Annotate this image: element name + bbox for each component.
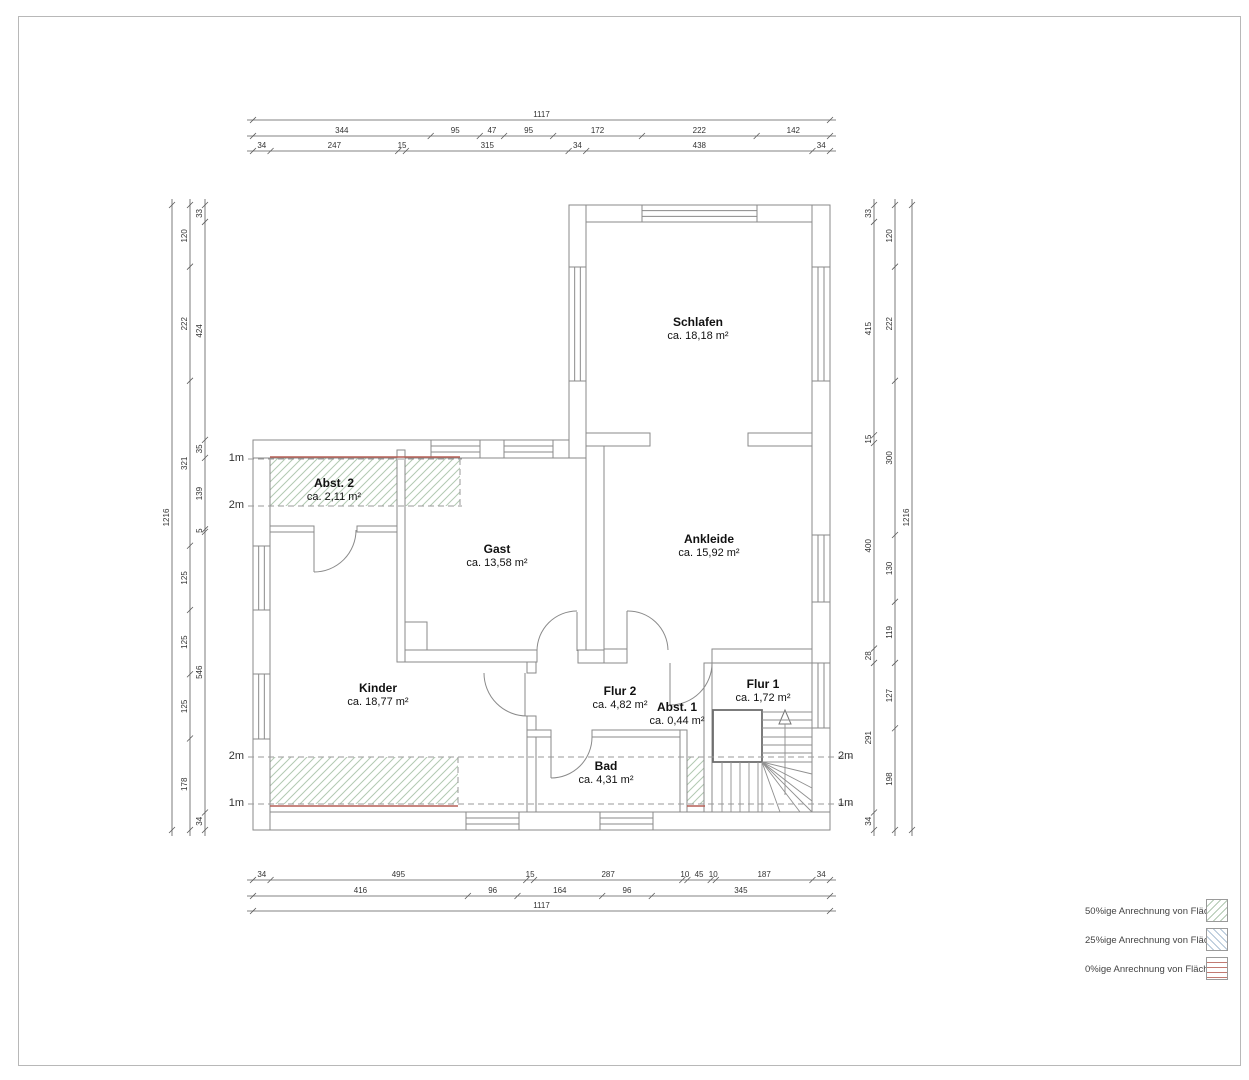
dimension-label: 315: [481, 141, 495, 150]
wall-segment: [604, 649, 627, 663]
legend-label-0pct: 0%ige Anrechnung von Flächen: [1085, 964, 1219, 975]
dimension-chain: 344954795172222142: [247, 126, 836, 139]
dimension-label: 344: [335, 126, 349, 135]
door-swing: [484, 673, 527, 716]
height-marker-upper-1m: 1m: [198, 452, 244, 464]
dimension-label: 34: [817, 141, 826, 150]
room-name: Kinder: [347, 681, 408, 695]
hatch-stair-strip: [687, 757, 705, 804]
hatch-abst2: [270, 458, 460, 506]
room-name: Gast: [466, 542, 527, 556]
wall-segment: [253, 812, 830, 830]
dimension-label: 300: [885, 451, 894, 465]
dimension-label: 125: [180, 635, 189, 649]
room-label-gast: Gast ca. 13,58 m²: [466, 542, 527, 569]
dimension-chain: 120222300130119127198: [885, 199, 898, 836]
window: [812, 663, 830, 728]
wall-segment: [527, 730, 551, 737]
dimension-label: 222: [885, 317, 894, 331]
dimension-chain: 120222321125125125178: [180, 199, 193, 836]
wall-segment: [592, 730, 687, 737]
room-label-flur1: Flur 1 ca. 1,72 m²: [735, 677, 790, 704]
room-area: ca. 0,44 m²: [649, 715, 704, 727]
dimension-label: 28: [864, 651, 873, 660]
room-label-ankleide: Ankleide ca. 15,92 m²: [678, 532, 739, 559]
legend-label-25pct: 25%ige Anrechnung von Flächen: [1085, 935, 1224, 946]
dimension-label: 95: [524, 126, 533, 135]
wall-segment: [527, 662, 536, 673]
abst1-closet-box: [713, 710, 762, 762]
dimension-label: 187: [757, 870, 771, 879]
dimension-label: 120: [180, 229, 189, 243]
wall-segment: [357, 526, 398, 532]
room-label-bad: Bad ca. 4,31 m²: [578, 759, 633, 786]
dimension-label: 34: [195, 816, 204, 825]
dimension-label: 15: [398, 141, 407, 150]
dimension-chain: 1117: [247, 110, 836, 123]
dimension-label: 287: [601, 870, 615, 879]
wall-segment: [586, 433, 650, 446]
dimension-label: 416: [354, 886, 368, 895]
dimension-label: 120: [885, 229, 894, 243]
room-label-kinder: Kinder ca. 18,77 m²: [347, 681, 408, 708]
dimension-chain: 1216: [162, 199, 175, 836]
room-area: ca. 4,82 m²: [592, 699, 647, 711]
window: [812, 535, 830, 602]
room-area: ca. 15,92 m²: [678, 547, 739, 559]
door: [314, 530, 356, 572]
dimension-label: 34: [257, 141, 266, 150]
dimension-label: 546: [195, 665, 204, 679]
room-area: ca. 18,77 m²: [347, 696, 408, 708]
room-name: Bad: [578, 759, 633, 773]
dimension-label: 10: [680, 870, 689, 879]
room-name: Flur 1: [735, 677, 790, 691]
door-swing: [314, 530, 356, 572]
wall-segment: [405, 650, 537, 662]
window: [504, 440, 553, 458]
dimension-label: 5: [195, 528, 204, 533]
dimension-label: 33: [195, 208, 204, 217]
room-area: ca. 2,11 m²: [307, 491, 361, 503]
wall-segment: [405, 622, 427, 650]
dimensions-bottom: 34495152871045101873441696164963451117: [247, 870, 836, 914]
window: [466, 812, 519, 830]
floorplan-drawing: 111734495479517222214234247153153443834 …: [0, 0, 1249, 1080]
dimension-label: 164: [553, 886, 567, 895]
dimension-label: 400: [864, 539, 873, 553]
hatch-zones: [270, 458, 705, 804]
dimension-label: 33: [864, 208, 873, 217]
staircase: [713, 710, 812, 812]
wall-segment: [253, 440, 270, 830]
room-area: ca. 1,72 m²: [735, 692, 790, 704]
wall-segment: [270, 526, 314, 532]
dimension-chain: 3342435139554634: [195, 199, 208, 836]
door: [484, 673, 527, 716]
height-marker-lower-right-1m: 1m: [838, 797, 853, 809]
dimension-label: 178: [180, 777, 189, 791]
dimension-label: 34: [257, 870, 266, 879]
dimension-chain: 4169616496345: [247, 886, 836, 899]
hatch-kinder: [270, 757, 458, 804]
dimension-label: 125: [180, 699, 189, 713]
dimension-label: 424: [195, 324, 204, 338]
room-name: Abst. 1: [649, 700, 704, 714]
dimensions-right: 3341515400282913412022230013011912719812…: [864, 199, 915, 836]
dimension-label: 34: [817, 870, 826, 879]
wall-segment: [680, 730, 687, 812]
height-marker-lower-left-1m: 1m: [198, 797, 244, 809]
room-name: Abst. 2: [307, 476, 361, 490]
room-area: ca. 4,31 m²: [578, 774, 633, 786]
door: [627, 611, 668, 650]
dimension-label: 438: [693, 141, 707, 150]
dimension-label: 119: [885, 625, 894, 638]
legend-swatch-50pct-icon: [1206, 899, 1228, 922]
dimension-label: 10: [709, 870, 718, 879]
dimension-label: 1216: [162, 508, 171, 526]
dimension-label: 142: [787, 126, 801, 135]
dimension-label: 1117: [533, 901, 550, 910]
room-label-schlafen: Schlafen ca. 18,18 m²: [667, 315, 728, 342]
room-name: Flur 2: [592, 684, 647, 698]
door-swing: [537, 611, 577, 651]
dimension-label: 96: [623, 886, 632, 895]
dimension-chain: 34247153153443834: [247, 141, 836, 154]
dimension-label: 495: [392, 870, 406, 879]
window: [431, 440, 480, 458]
dimension-label: 96: [488, 886, 497, 895]
dimension-label: 222: [180, 317, 189, 331]
window: [253, 546, 270, 610]
dimension-chain: 33415154002829134: [864, 199, 877, 836]
legend-swatch-0pct-icon: [1206, 957, 1228, 980]
dimension-label: 198: [885, 772, 894, 786]
dimension-label: 1216: [902, 508, 911, 526]
dimension-label: 34: [864, 816, 873, 825]
dimension-label: 125: [180, 571, 189, 585]
wall-segment: [748, 433, 812, 446]
dimension-label: 321: [180, 456, 189, 470]
dimension-label: 415: [864, 321, 873, 335]
room-area: ca. 13,58 m²: [466, 557, 527, 569]
dimension-label: 130: [885, 561, 894, 575]
room-area: ca. 18,18 m²: [667, 330, 728, 342]
dimension-label: 15: [526, 870, 535, 879]
height-marker-lower-right-2m: 2m: [838, 750, 853, 762]
wall-segment: [578, 650, 604, 663]
dimension-chain: 1117: [247, 901, 836, 914]
dimension-label: 15: [864, 434, 873, 443]
dimension-label: 345: [734, 886, 748, 895]
wall-segment: [397, 450, 405, 662]
window: [569, 267, 586, 381]
dimension-label: 95: [451, 126, 460, 135]
floorplan-page: 111734495479517222214234247153153443834 …: [0, 0, 1249, 1080]
room-name: Ankleide: [678, 532, 739, 546]
dimension-chain: 344951528710451018734: [247, 870, 836, 883]
dimension-label: 247: [328, 141, 342, 150]
window: [253, 674, 270, 739]
dimension-label: 172: [591, 126, 605, 135]
dimension-label: 34: [573, 141, 582, 150]
window: [600, 812, 653, 830]
door: [537, 611, 577, 651]
dimension-label: 127: [885, 688, 894, 702]
wall-segment: [586, 440, 604, 663]
wall-segment: [712, 649, 812, 663]
dimension-label: 222: [693, 126, 707, 135]
dimension-label: 291: [864, 731, 873, 745]
room-label-flur2: Flur 2 ca. 4,82 m²: [592, 684, 647, 711]
legend-label-50pct: 50%ige Anrechnung von Flächen: [1085, 906, 1224, 917]
window: [642, 205, 757, 222]
height-marker-lower-left-2m: 2m: [198, 750, 244, 762]
dimension-label: 1117: [533, 110, 550, 119]
dimension-label: 47: [487, 126, 496, 135]
window: [812, 267, 830, 381]
dimensions-left: 1216120222321125125125178334243513955463…: [162, 199, 208, 836]
legend-swatch-25pct-icon: [1206, 928, 1228, 951]
height-marker-upper-2m: 2m: [198, 499, 244, 511]
room-name: Schlafen: [667, 315, 728, 329]
door-swing: [627, 611, 668, 650]
dimension-chain: 1216: [902, 199, 915, 836]
dimension-label: 45: [695, 870, 704, 879]
dimensions-top: 111734495479517222214234247153153443834: [247, 110, 836, 154]
room-label-abst2: Abst. 2 ca. 2,11 m²: [307, 476, 361, 503]
room-label-abst1: Abst. 1 ca. 0,44 m²: [649, 700, 704, 727]
